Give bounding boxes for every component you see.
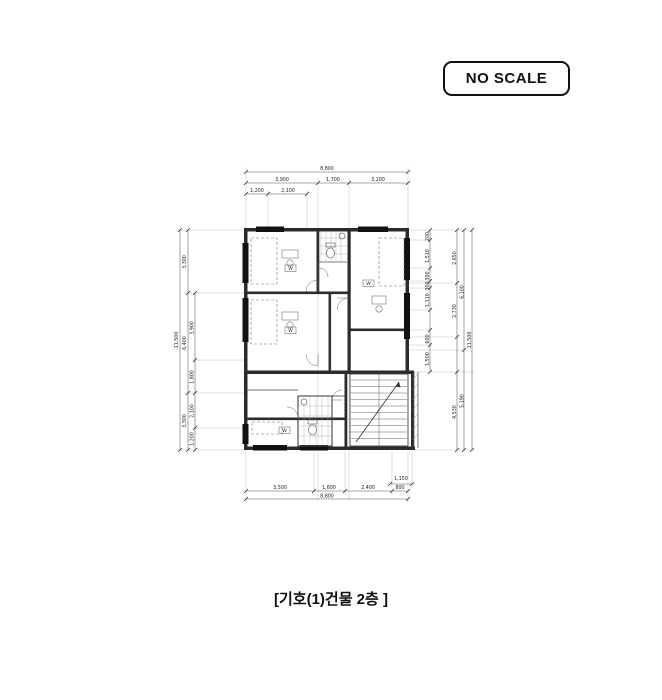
dim-left-seg: 1,800 [190,370,196,384]
partitions [246,262,345,396]
dim-right-seg: 600 [425,334,431,343]
dim-bottom-seg: 3,500 [273,485,287,491]
dim-bottom-seg: 2,400 [361,485,375,491]
dim-left-seg: 3,900 [190,321,196,335]
desk-1 [282,250,298,258]
window-right-1 [404,238,410,280]
dim-right-seg: 1,110 [425,293,431,307]
bathroom-top [318,231,347,262]
toilet-icon [327,248,335,258]
dim-right-seg: 1,510 [425,249,431,263]
room-label-w4: W [282,428,287,434]
room-label-w1: W [288,266,293,272]
dim-left-total: 11,500 [174,332,180,349]
dim-bottom-seg: 800 [395,485,404,491]
dim-left-seg: 6,400 [182,336,188,350]
toilet-icon [309,425,317,435]
windows [243,227,411,451]
bed-mid-left [251,300,277,344]
window-left-2 [243,298,249,342]
room-label-w2: W [288,328,293,334]
dim-bottom-total: 8,800 [320,494,334,500]
bathroom-bottom [298,396,332,446]
dim-left-seg: 2,100 [190,404,196,418]
dim-top-seg: 1,200 [250,188,264,194]
dim-top-total: 8,800 [320,166,334,172]
desk-3 [372,296,386,304]
window-right-2 [404,293,410,339]
dim-right-total: 11,500 [467,332,473,349]
furniture [251,238,404,434]
drawing-caption: [기호(1)건물 2층 ] [0,588,662,609]
dim-right-seg: 2,730 [452,304,458,318]
window-left-1 [243,243,249,283]
dim-right-seg: 2,650 [452,251,458,265]
room-label-w3: W [366,281,371,287]
dim-bottom-seg: 1,600 [322,485,336,491]
window-left-3 [243,424,249,444]
dim-left-seg: 3,300 [182,414,188,428]
caption-text: [기호(1)건물 2층 ] [274,591,388,608]
chair-3 [376,306,382,312]
dim-right-seg: 300 [425,281,431,290]
dim-stair-width: 1,150 [394,476,408,482]
dim-right-seg: 200 [425,232,431,241]
sink-icon [301,399,307,405]
dim-top-seg: 3,900 [275,177,289,183]
toilet-tank-icon [326,243,335,247]
dim-left-seg: 1,200 [190,432,196,446]
dim-top-seg: 3,200 [371,177,385,183]
dim-right-seg: 6,100 [460,285,466,299]
window-bottom-1 [253,445,287,451]
dim-right-seg: 4,530 [452,405,458,419]
dim-right-seg: 5,190 [460,394,466,408]
dim-top-seg: 1,700 [326,177,340,183]
staircase [350,374,408,446]
dim-right-seg: 1,500 [425,352,431,366]
stair-direction-arrow [356,382,399,442]
dim-right-seg: 300 [425,271,431,280]
window-top-1 [256,227,284,233]
toilet-tank-icon [308,420,317,424]
walls [244,228,415,450]
desk-2 [282,312,298,320]
dim-top-seg: 2,100 [281,188,295,194]
bed-top-left [251,238,277,284]
desk-bottom-left [252,422,282,434]
dim-left-seg: 3,300 [182,255,188,269]
bed-top-right [379,238,404,286]
window-top-2 [358,227,388,233]
